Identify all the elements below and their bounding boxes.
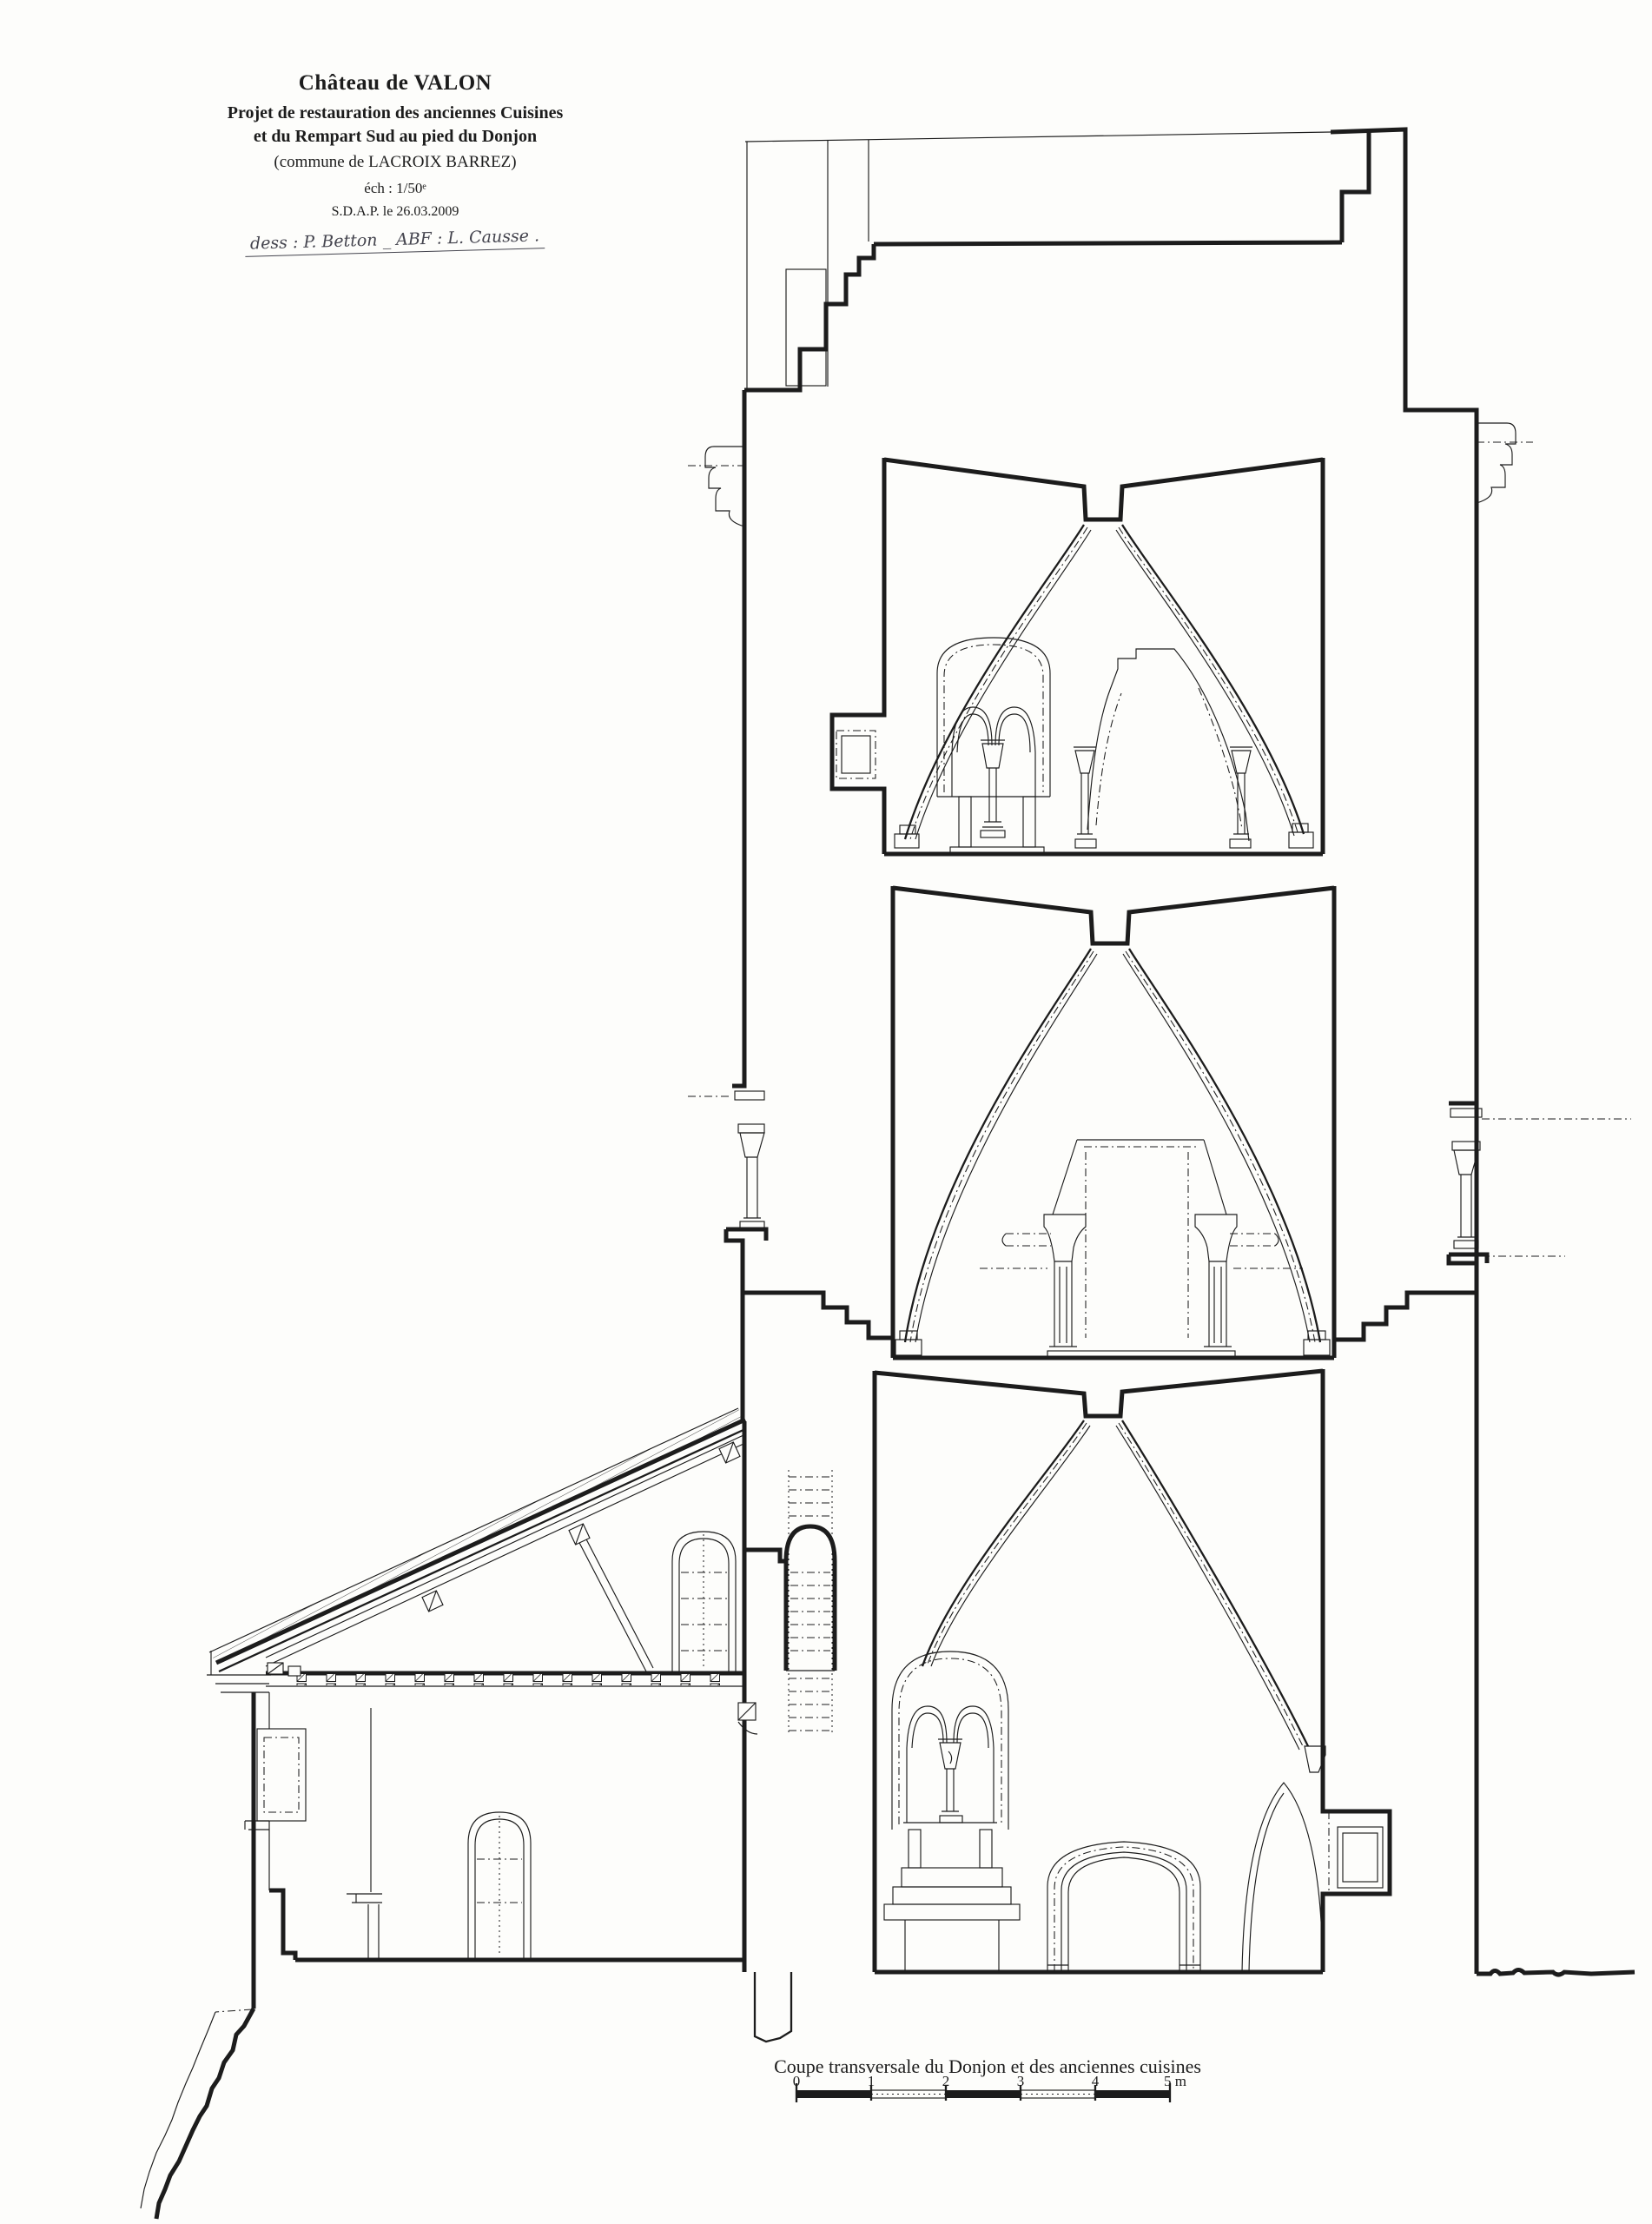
mid-vault-ribs <box>905 949 1320 1342</box>
top-vault-ceiling <box>884 460 1323 520</box>
right-wall-window <box>1329 1811 1383 1894</box>
gallery-colonnette-left <box>735 1091 764 1229</box>
purlin-section-2 <box>569 1524 590 1545</box>
stair-steps-hidden <box>789 1477 832 1731</box>
tower-foundation <box>755 1972 791 2042</box>
corbel-steps-left <box>744 1293 893 1338</box>
middle-level <box>735 886 1482 1358</box>
top-vault-ribs <box>905 525 1304 839</box>
top-level <box>832 458 1323 854</box>
beam-seat-corbel <box>738 1703 757 1734</box>
rampart-rock-slope <box>141 2009 254 2219</box>
purlin-section-1 <box>422 1591 443 1612</box>
scale-bar <box>796 2083 1170 2102</box>
rampart-walk-lines-right <box>1482 1119 1631 1256</box>
twin-window-ground <box>884 1651 1020 1972</box>
section-drawing-svg <box>0 0 1652 2224</box>
roof-ridge-edge <box>209 1408 738 1652</box>
annex-wall-base-steps <box>269 1890 295 1960</box>
scale-tick-0: 0 <box>793 2073 801 2090</box>
stair-door <box>744 1470 835 1736</box>
kitchen-annex <box>141 1408 757 2219</box>
mid-vault-ceiling <box>893 888 1334 943</box>
ground-vault-ribs <box>922 1420 1308 1750</box>
annex-left-wall <box>207 1651 306 2009</box>
attic-round-recess <box>672 1532 736 1672</box>
terrace-parapet-background <box>745 132 1331 390</box>
annex-arch-niche <box>468 1812 531 1960</box>
scale-tick-2: 2 <box>942 2073 950 2090</box>
ground-level <box>744 1369 1390 1972</box>
roof-line-upper <box>216 1420 745 1663</box>
pointed-door-right-inner <box>1249 1793 1284 1972</box>
corbel-steps-right <box>1334 1293 1477 1340</box>
fireplace-hood-ruin <box>1074 649 1252 848</box>
ground-line-right <box>1477 1970 1635 1976</box>
scale-tick-3: 3 <box>1017 2073 1025 2090</box>
twin-window-top <box>937 638 1050 854</box>
top-left-window <box>836 731 876 778</box>
ceiling-joists <box>266 1663 745 1686</box>
donjon-tower <box>688 129 1635 2042</box>
fireplace-middle <box>980 1140 1303 1358</box>
mid-vault-responds <box>895 1331 1330 1355</box>
corbel-left <box>688 447 744 526</box>
roof-line-lower <box>219 1429 745 1671</box>
corbel-right <box>1477 423 1533 503</box>
scale-tick-1: 1 <box>868 2073 876 2090</box>
ground-vault-ceiling <box>875 1371 1323 1416</box>
top-left-inner-wall <box>832 458 884 854</box>
roof-covering <box>209 1408 745 1663</box>
tower-outline <box>726 129 1487 1974</box>
truss-strut <box>577 1534 653 1671</box>
annex-console <box>347 1708 382 1960</box>
central-arch-door <box>1047 1842 1200 1972</box>
sheet: Château de VALON Projet de restauration … <box>0 0 1652 2224</box>
scale-end-label: 5 m <box>1164 2073 1186 2090</box>
pointed-door-right <box>1242 1783 1322 1972</box>
scale-tick-4: 4 <box>1092 2073 1100 2090</box>
drawing-caption: Coupe transversale du Donjon et des anci… <box>766 2055 1209 2078</box>
